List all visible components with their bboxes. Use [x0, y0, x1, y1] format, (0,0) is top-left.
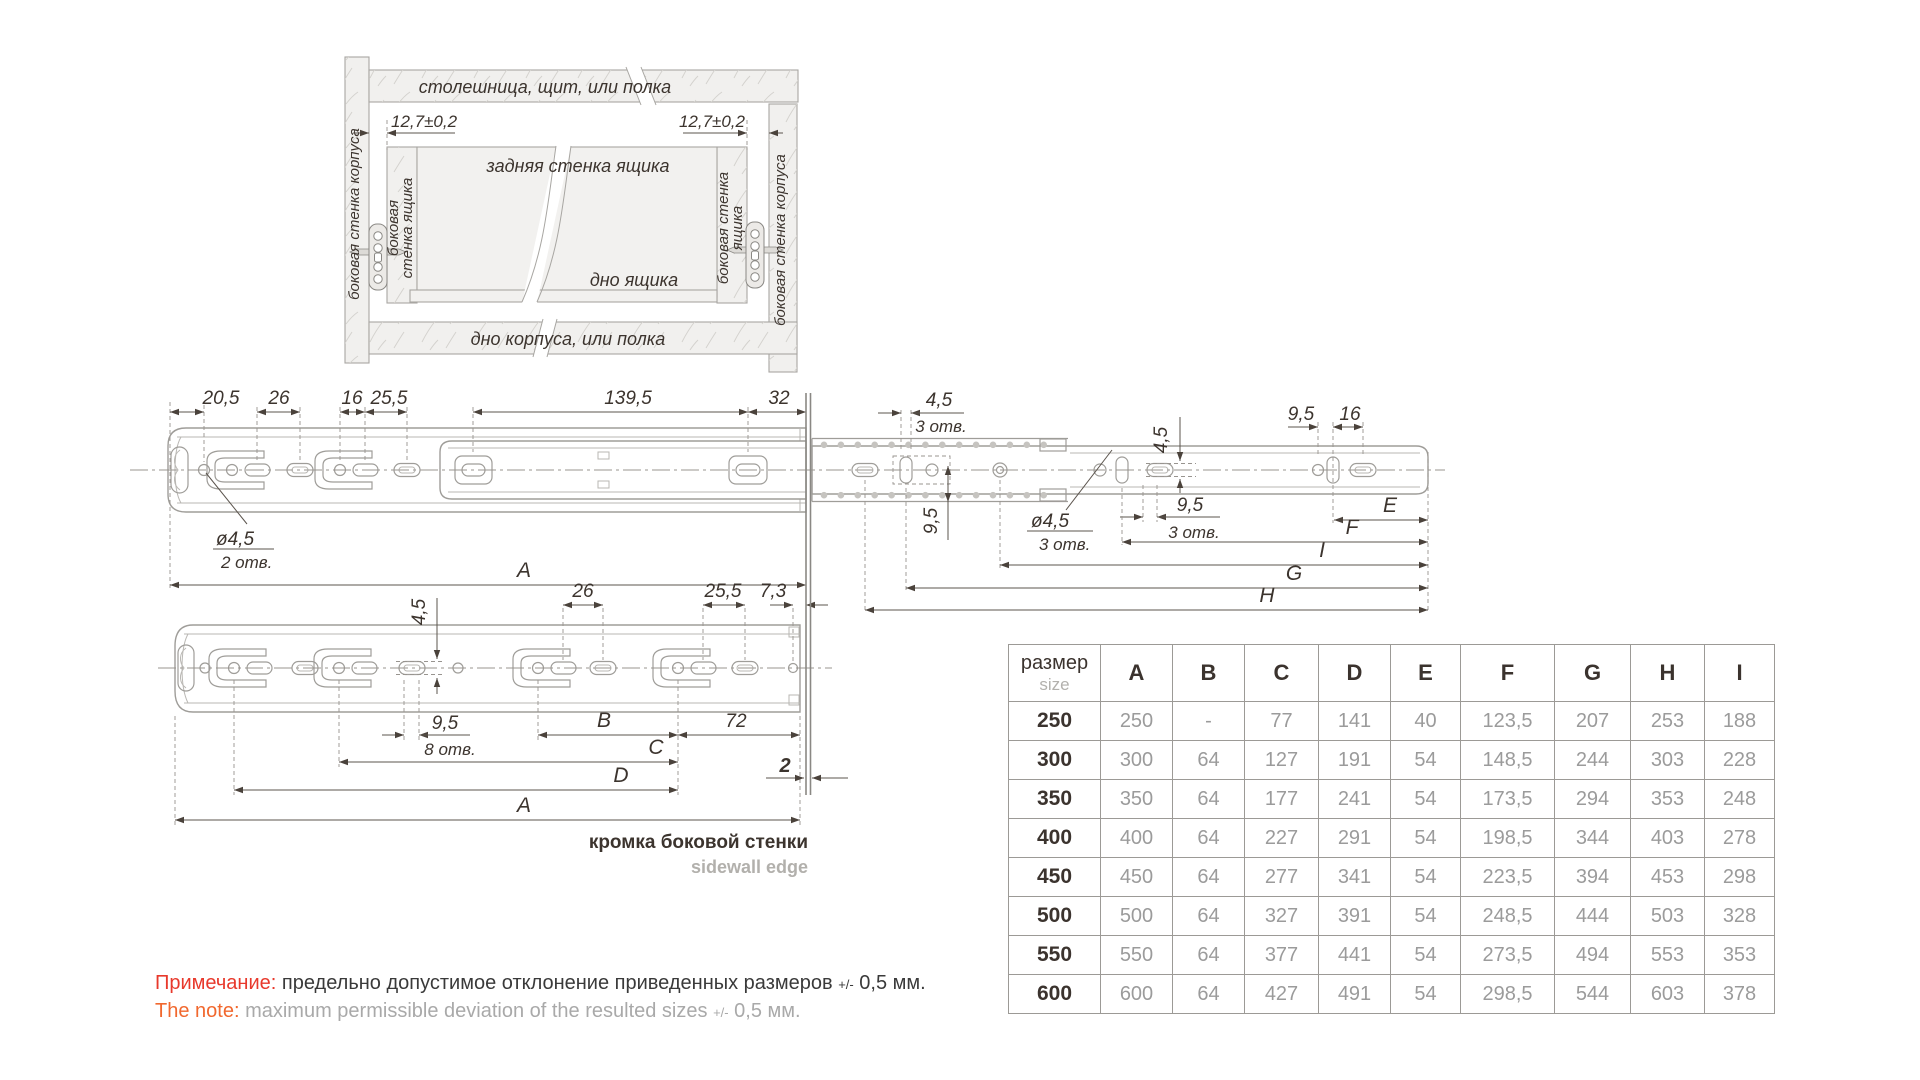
value-cell: 491 — [1319, 975, 1391, 1014]
col-header-F: F — [1461, 645, 1555, 702]
value-cell: 600 — [1101, 975, 1173, 1014]
installation-section-view: 12,7±0,2 12,7±0,2 столешница, щит, или п… — [345, 57, 798, 372]
value-cell: 444 — [1555, 897, 1631, 936]
col-header-A: A — [1101, 645, 1173, 702]
note-ru-text: предельно допустимое отклонение приведен… — [282, 972, 833, 994]
dim-4-5-top-holes: 3 отв. — [915, 417, 966, 436]
value-cell: 77 — [1245, 702, 1319, 741]
dim-26-mount: 26 — [571, 581, 594, 602]
value-cell: 403 — [1631, 819, 1705, 858]
dia-4-5-l-label: ø4,5 — [216, 529, 254, 550]
value-cell: 173,5 — [1461, 780, 1555, 819]
value-cell: 141 — [1319, 702, 1391, 741]
value-cell: 350 — [1101, 780, 1173, 819]
col-header-B: B — [1173, 645, 1245, 702]
value-cell: 391 — [1319, 897, 1391, 936]
letter-D: D — [613, 764, 628, 787]
value-cell: 198,5 — [1461, 819, 1555, 858]
value-cell: 503 — [1631, 897, 1705, 936]
dim-9-5-r-holes: 3 отв. — [1168, 523, 1219, 542]
letter-G: G — [1286, 562, 1302, 585]
value-cell: 303 — [1631, 741, 1705, 780]
note-ru-tolerance: +/- — [838, 977, 854, 992]
size-header-en: size — [1009, 675, 1100, 695]
value-cell: 64 — [1173, 741, 1245, 780]
note-line-en: The note: maximum permissible deviation … — [155, 998, 926, 1026]
value-cell: 54 — [1391, 780, 1461, 819]
size-cell: 250 — [1009, 702, 1101, 741]
letter-A-mount: A — [515, 794, 531, 817]
drawer-right-wall-label-2: ящика — [729, 206, 746, 252]
letter-H: H — [1259, 584, 1275, 607]
letter-I: I — [1319, 539, 1325, 562]
value-cell: 248 — [1705, 780, 1775, 819]
drawer-left-wall-label-2: стенка ящика — [399, 178, 416, 279]
note-en-value: 0,5 мм. — [734, 1000, 800, 1022]
table-row: 3503506417724154173,5294353248 — [1009, 780, 1775, 819]
cabinet-bottom-label: дно корпуса, или полка — [471, 329, 666, 349]
value-cell: 227 — [1245, 819, 1319, 858]
dim-9-5-tr-label: 9,5 — [1288, 404, 1315, 425]
dim-4-5-top-label: 4,5 — [926, 390, 953, 411]
value-cell: 64 — [1173, 819, 1245, 858]
size-cell: 600 — [1009, 975, 1101, 1014]
value-cell: 191 — [1319, 741, 1391, 780]
note-en-tolerance: +/- — [713, 1005, 729, 1020]
dim-139-5: 139,5 — [604, 388, 652, 409]
value-cell: 377 — [1245, 936, 1319, 975]
value-cell: 54 — [1391, 975, 1461, 1014]
size-table: размер size A B C D E F G H I 250250-771… — [1008, 644, 1775, 1014]
value-cell: 54 — [1391, 819, 1461, 858]
note-line-ru: Примечание: предельно допустимое отклоне… — [155, 970, 926, 998]
size-header-ru: размер — [1009, 651, 1100, 675]
note-en-label: The note: — [155, 1000, 240, 1022]
table-header-size: размер size — [1009, 645, 1101, 702]
value-cell: 278 — [1705, 819, 1775, 858]
value-cell: 223,5 — [1461, 858, 1555, 897]
dim-72: 72 — [725, 711, 747, 732]
dim-9-5-r-label: 9,5 — [1177, 495, 1204, 516]
drawer-back-wall-label: задняя стенка ящика — [485, 156, 669, 176]
letter-A-side: A — [515, 559, 531, 582]
dim-25-5: 25,5 — [370, 388, 408, 409]
sidewall-edge-label-ru: кромка боковой стенки — [589, 832, 808, 853]
value-cell: 394 — [1555, 858, 1631, 897]
dim-25-5-mount: 25,5 — [704, 581, 742, 602]
value-cell: 378 — [1705, 975, 1775, 1014]
value-cell: 207 — [1555, 702, 1631, 741]
note-ru-value: 0,5 мм. — [859, 972, 925, 994]
offset-dimension-right: 12,7±0,2 — [679, 112, 783, 150]
table-row: 3003006412719154148,5244303228 — [1009, 741, 1775, 780]
cabinet-left-wall-label: боковая стенка корпуса — [346, 128, 363, 300]
value-cell: 400 — [1101, 819, 1173, 858]
size-cell: 400 — [1009, 819, 1101, 858]
value-cell: 123,5 — [1461, 702, 1555, 741]
value-cell: 344 — [1555, 819, 1631, 858]
dia-4-5-m-holes: 3 отв. — [1039, 535, 1090, 554]
letter-F: F — [1346, 516, 1360, 539]
value-cell: 64 — [1173, 975, 1245, 1014]
value-cell: 328 — [1705, 897, 1775, 936]
value-cell: 544 — [1555, 975, 1631, 1014]
dim-4-5-vert-label: 4,5 — [1151, 426, 1172, 453]
value-cell: 273,5 — [1461, 936, 1555, 975]
col-header-H: H — [1631, 645, 1705, 702]
value-cell: 64 — [1173, 936, 1245, 975]
dim-20-5: 20,5 — [202, 388, 240, 409]
dim-32: 32 — [768, 388, 790, 409]
col-header-C: C — [1245, 645, 1319, 702]
size-cell: 300 — [1009, 741, 1101, 780]
value-cell: 553 — [1631, 936, 1705, 975]
size-cell: 350 — [1009, 780, 1101, 819]
cabinet-right-wall-label: боковая стенка корпуса — [772, 154, 789, 326]
dim-2-gap: 2 — [766, 755, 848, 778]
value-cell: 188 — [1705, 702, 1775, 741]
value-cell: 127 — [1245, 741, 1319, 780]
value-cell: 54 — [1391, 858, 1461, 897]
value-cell: 341 — [1319, 858, 1391, 897]
slide-mounting-view: 4,5 26 25,5 7,3 — [158, 581, 848, 877]
dim-16-tr-label: 16 — [1339, 404, 1361, 425]
value-cell: 148,5 — [1461, 741, 1555, 780]
value-cell: 64 — [1173, 858, 1245, 897]
size-table-body: 250250-7714140123,5207253188300300641271… — [1009, 702, 1775, 1014]
drawer-bottom-panel — [410, 290, 717, 302]
datasheet-page: 12,7±0,2 12,7±0,2 столешница, щит, или п… — [0, 0, 1920, 1080]
col-header-G: G — [1555, 645, 1631, 702]
value-cell: 244 — [1555, 741, 1631, 780]
sidewall-edge-label-en: sidewall edge — [691, 857, 808, 877]
table-row: 6006006442749154298,5544603378 — [1009, 975, 1775, 1014]
size-cell: 450 — [1009, 858, 1101, 897]
value-cell: 241 — [1319, 780, 1391, 819]
dim-16: 16 — [341, 388, 363, 409]
value-cell: 294 — [1555, 780, 1631, 819]
letter-B: B — [597, 709, 611, 732]
col-header-E: E — [1391, 645, 1461, 702]
value-cell: 500 — [1101, 897, 1173, 936]
value-cell: 441 — [1319, 936, 1391, 975]
dim-9-5-mount-label: 9,5 — [432, 713, 459, 734]
value-cell: 64 — [1173, 780, 1245, 819]
value-cell: 54 — [1391, 741, 1461, 780]
dim-26: 26 — [267, 388, 290, 409]
value-cell: 494 — [1555, 936, 1631, 975]
size-cell: 550 — [1009, 936, 1101, 975]
value-cell: 300 — [1101, 741, 1173, 780]
col-header-I: I — [1705, 645, 1775, 702]
dia-4-5-l-holes: 2 отв. — [220, 553, 272, 572]
note-en-text: maximum permissible deviation of the res… — [245, 1000, 707, 1022]
dim-2-label: 2 — [778, 755, 790, 777]
note-ru-label: Примечание: — [155, 972, 276, 994]
value-cell: 277 — [1245, 858, 1319, 897]
value-cell: 177 — [1245, 780, 1319, 819]
value-cell: 353 — [1705, 936, 1775, 975]
value-cell: 327 — [1245, 897, 1319, 936]
note-block: Примечание: предельно допустимое отклоне… — [155, 970, 926, 1026]
table-row: 5005006432739154248,5444503328 — [1009, 897, 1775, 936]
value-cell: 64 — [1173, 897, 1245, 936]
table-row: 5505506437744154273,5494553353 — [1009, 936, 1775, 975]
size-cell: 500 — [1009, 897, 1101, 936]
slide-side-view: 20,5 26 16 25,5 139,5 32 4,5 3 отв. 4,5 — [130, 388, 1445, 613]
offset-right-label: 12,7±0,2 — [679, 112, 746, 131]
dia-4-5-m-label: ø4,5 — [1031, 511, 1069, 532]
value-cell: 298 — [1705, 858, 1775, 897]
value-cell: 54 — [1391, 897, 1461, 936]
table-row: 250250-7714140123,5207253188 — [1009, 702, 1775, 741]
value-cell: 453 — [1631, 858, 1705, 897]
dim-7-3-mount: 7,3 — [760, 581, 787, 602]
value-cell: 353 — [1631, 780, 1705, 819]
value-cell: 450 — [1101, 858, 1173, 897]
value-cell: 54 — [1391, 936, 1461, 975]
drawer-bottom-label: дно ящика — [590, 270, 678, 290]
offset-left-label: 12,7±0,2 — [391, 112, 458, 131]
letter-E: E — [1383, 494, 1398, 517]
table-row: 4004006422729154198,5344403278 — [1009, 819, 1775, 858]
value-cell: 550 — [1101, 936, 1173, 975]
value-cell: 40 — [1391, 702, 1461, 741]
value-cell: 298,5 — [1461, 975, 1555, 1014]
table-row: 4504506427734154223,5394453298 — [1009, 858, 1775, 897]
dim-4-5-mount-label: 4,5 — [409, 598, 430, 625]
value-cell: - — [1173, 702, 1245, 741]
letter-C: C — [648, 736, 664, 759]
sidewall-edge-line — [806, 393, 811, 795]
dim-9-5-mount-holes: 8 отв. — [424, 740, 475, 759]
dim-9-5-mid-label: 9,5 — [921, 507, 942, 534]
value-cell: 250 — [1101, 702, 1173, 741]
value-cell: 253 — [1631, 702, 1705, 741]
top-panel-label: столешница, щит, или полка — [419, 77, 671, 97]
value-cell: 427 — [1245, 975, 1319, 1014]
table-header-row: размер size A B C D E F G H I — [1009, 645, 1775, 702]
value-cell: 248,5 — [1461, 897, 1555, 936]
value-cell: 603 — [1631, 975, 1705, 1014]
value-cell: 291 — [1319, 819, 1391, 858]
value-cell: 228 — [1705, 741, 1775, 780]
col-header-D: D — [1319, 645, 1391, 702]
